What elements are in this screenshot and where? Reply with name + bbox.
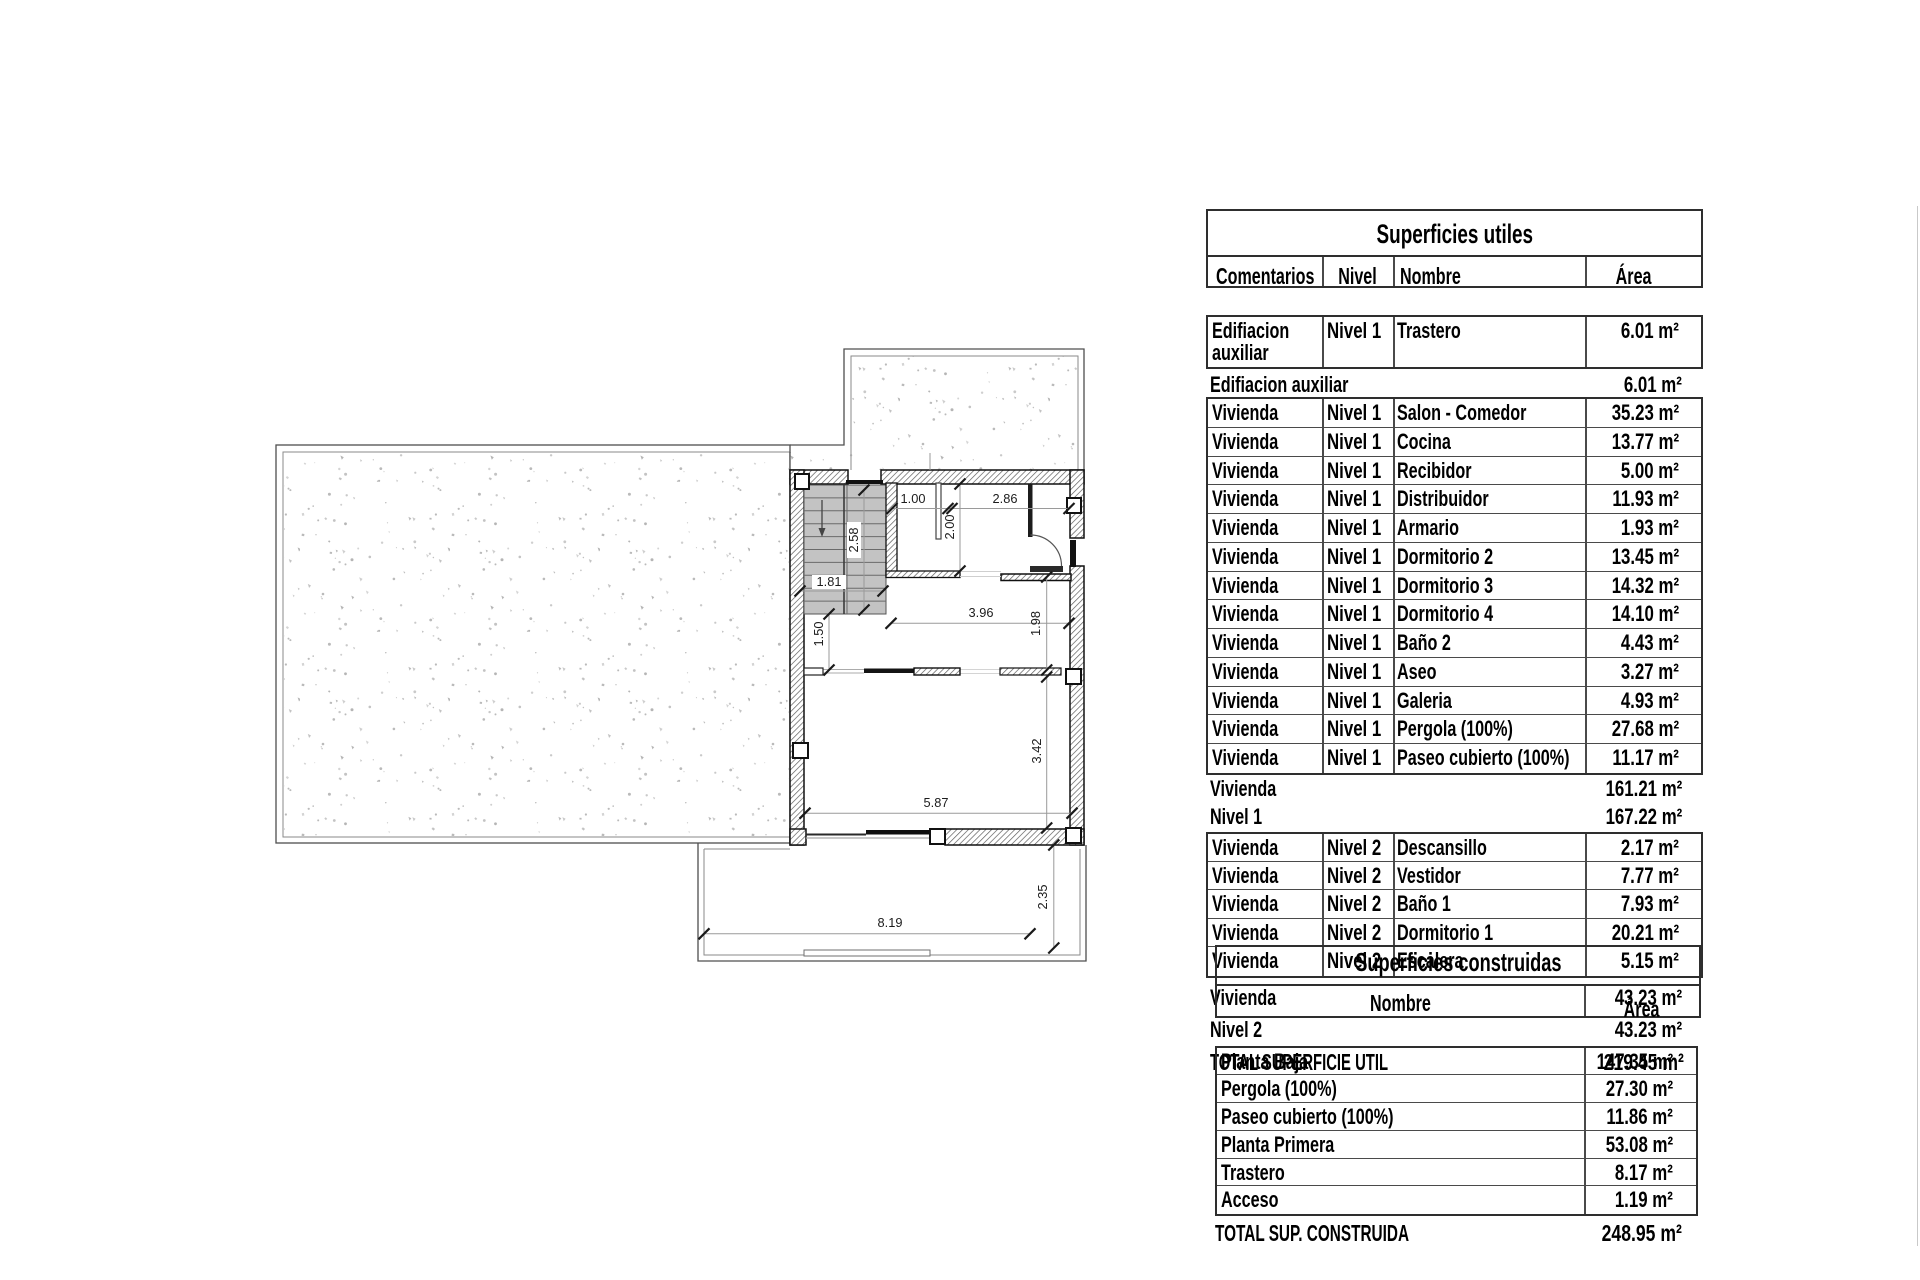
svg-text:1.98: 1.98 <box>1028 611 1043 636</box>
svg-text:8.19: 8.19 <box>878 915 903 930</box>
svg-text:1.81: 1.81 <box>817 574 842 589</box>
svg-text:2.86: 2.86 <box>993 491 1018 506</box>
svg-text:3.42: 3.42 <box>1029 739 1044 764</box>
svg-text:1.00: 1.00 <box>901 491 926 506</box>
svg-text:3.96: 3.96 <box>969 605 994 620</box>
svg-text:2.35: 2.35 <box>1035 885 1050 910</box>
svg-text:2.00: 2.00 <box>942 515 957 540</box>
svg-text:5.87: 5.87 <box>924 795 949 810</box>
svg-text:2.58: 2.58 <box>846 528 861 553</box>
svg-text:1.50: 1.50 <box>811 622 826 647</box>
